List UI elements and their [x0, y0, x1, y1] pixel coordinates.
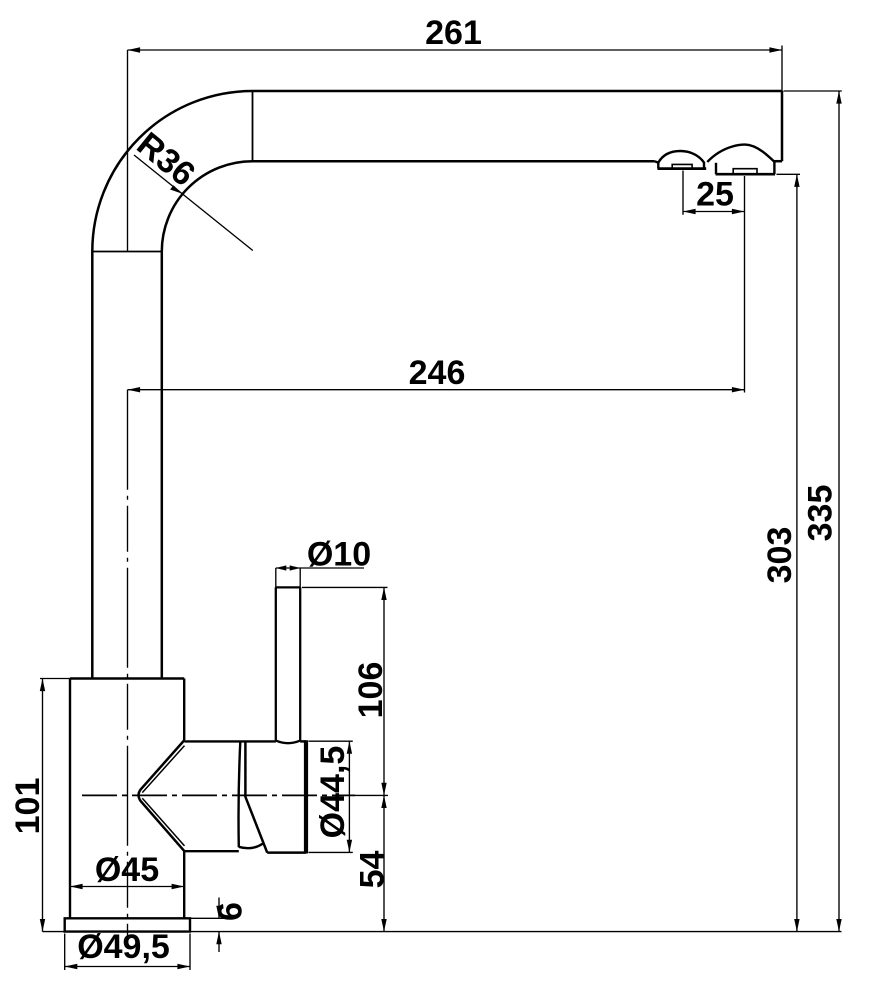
svg-text:Ø45: Ø45 — [95, 851, 159, 889]
svg-text:335: 335 — [802, 485, 840, 542]
svg-text:303: 303 — [761, 527, 799, 584]
svg-text:Ø44,5: Ø44,5 — [314, 746, 352, 839]
svg-text:261: 261 — [425, 14, 482, 52]
svg-text:Ø10: Ø10 — [307, 536, 371, 574]
svg-text:25: 25 — [696, 176, 734, 214]
svg-text:106: 106 — [352, 662, 390, 719]
svg-text:Ø49,5: Ø49,5 — [77, 928, 170, 966]
svg-text:6: 6 — [212, 902, 250, 921]
svg-text:101: 101 — [9, 778, 47, 835]
svg-text:246: 246 — [409, 354, 466, 392]
svg-text:54: 54 — [353, 851, 391, 889]
